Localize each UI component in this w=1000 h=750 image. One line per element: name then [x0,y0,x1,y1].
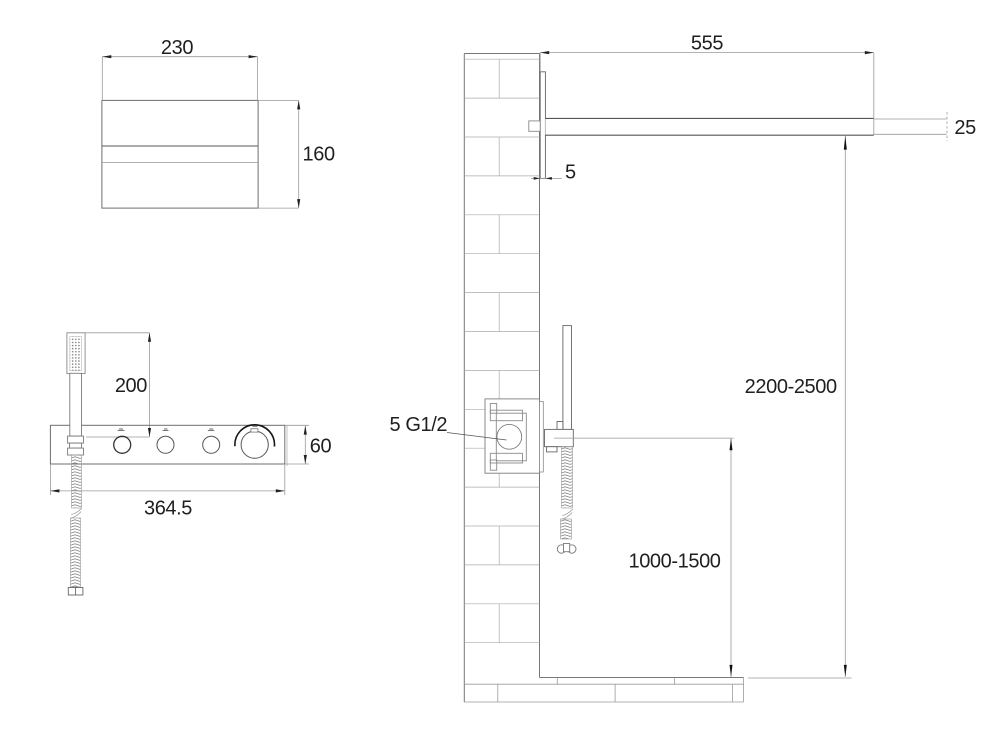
svg-text:555: 555 [691,33,723,55]
svg-text:60: 60 [310,436,332,458]
svg-text:1000-1500: 1000-1500 [628,551,720,573]
svg-text:200: 200 [115,375,147,397]
svg-text:5: 5 [565,161,576,183]
svg-text:25: 25 [954,117,976,139]
svg-text:230: 230 [161,37,193,59]
svg-text:364.5: 364.5 [144,498,192,520]
svg-text:2200-2500: 2200-2500 [745,376,837,398]
svg-text:160: 160 [303,144,335,166]
svg-text:5 G1/2: 5 G1/2 [390,414,448,436]
